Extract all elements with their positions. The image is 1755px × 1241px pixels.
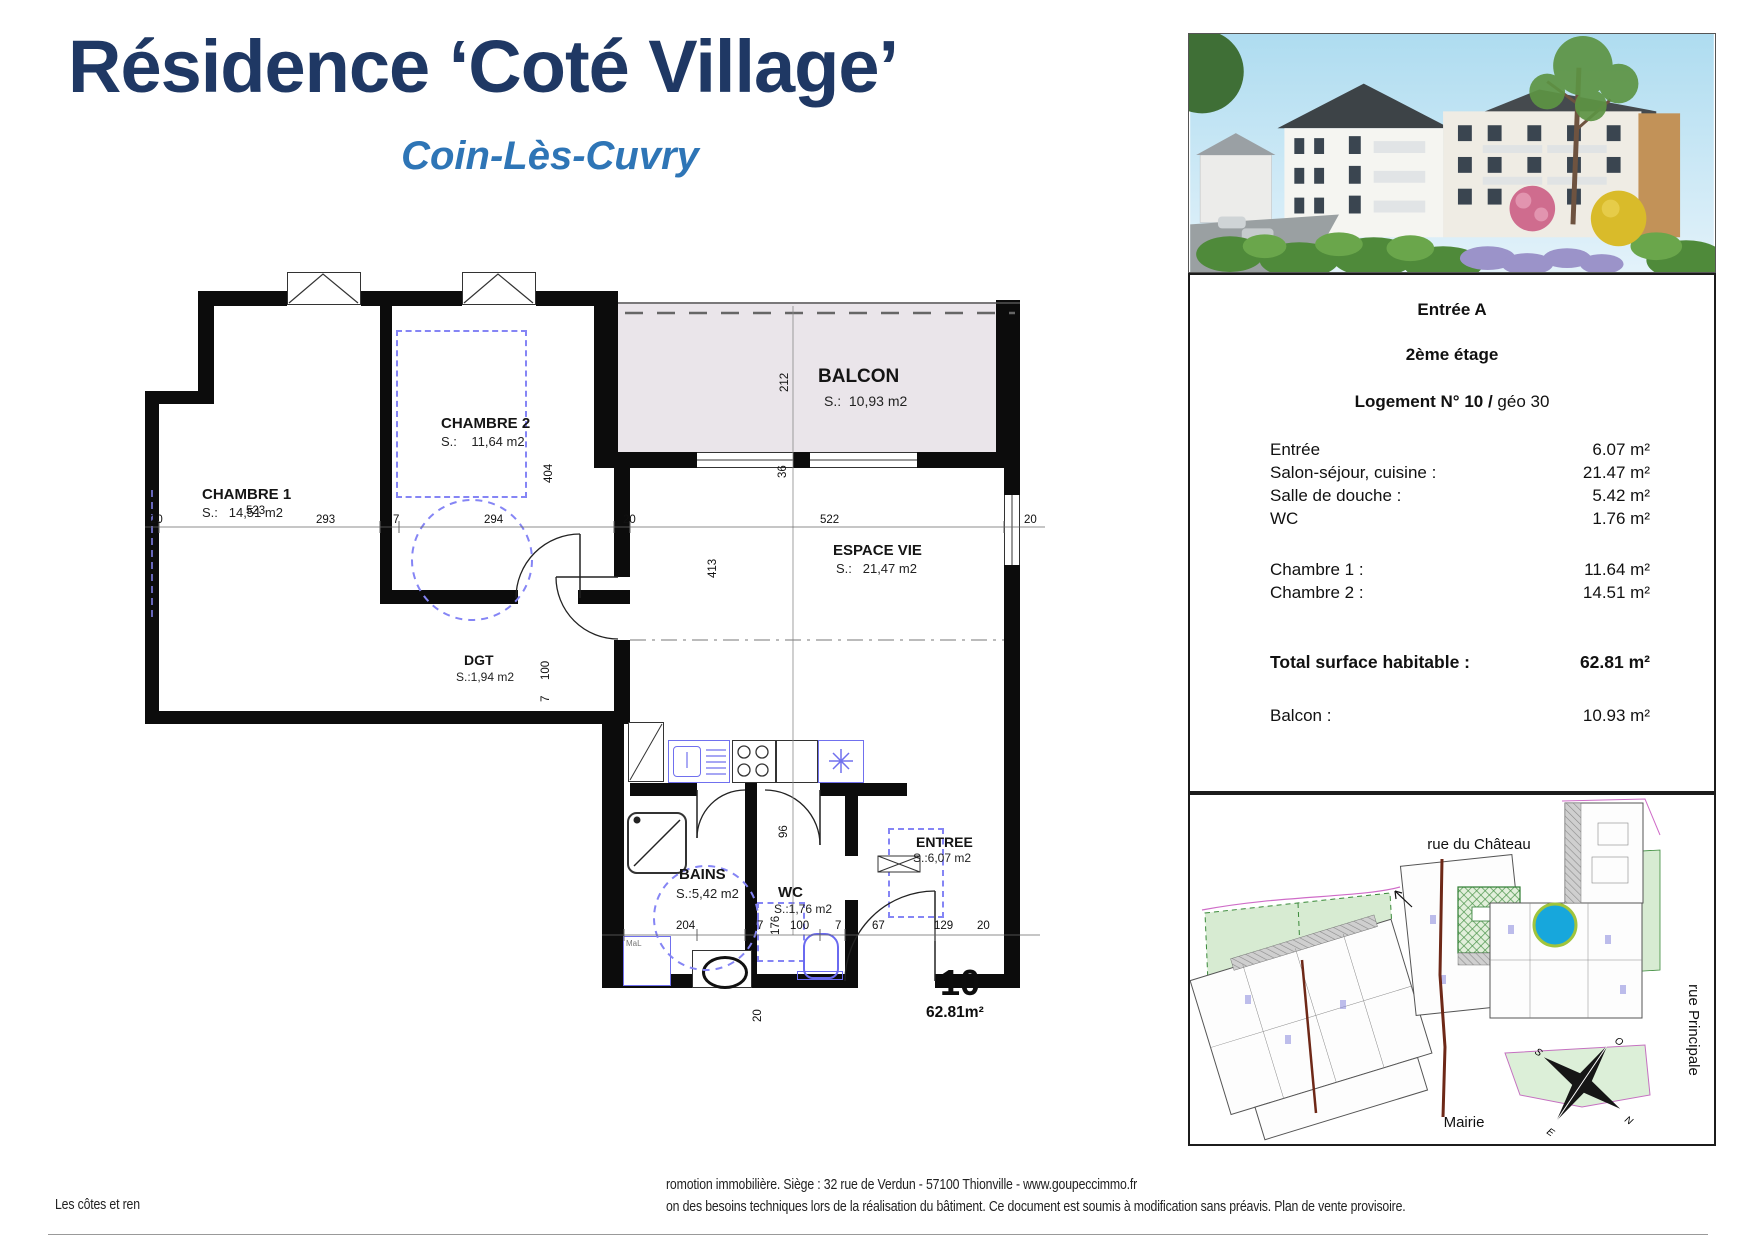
detail-row-label: Salon-séjour, cuisine : <box>1270 463 1436 483</box>
room-area-chambre2: S.: 11,64 m2 <box>441 434 525 449</box>
room-label-chambre1: CHAMBRE 1 <box>202 486 291 503</box>
landmark-label: Mairie <box>1444 1114 1485 1131</box>
detail-row-value: 11.64 m² <box>1500 560 1650 580</box>
room-area-dgt: S.:1,94 m2 <box>456 670 514 684</box>
room-label-entree: ENTREE <box>916 834 973 850</box>
dimension-label: 294 <box>484 514 503 526</box>
dimension-label: 413 <box>707 559 719 578</box>
dimension-label: 212 <box>779 373 791 392</box>
dimension-label: 7 <box>393 514 399 526</box>
dimension-label: 20 <box>977 920 990 932</box>
balcony-row-label: Balcon : <box>1270 706 1331 726</box>
detail-row-label: Chambre 2 : <box>1270 583 1364 603</box>
dimension-label: 100 <box>790 920 809 932</box>
unit-line-rest: géo 30 <box>1493 392 1550 411</box>
dimension-label: 100 <box>540 661 552 680</box>
room-area-balcon: S.: 10,93 m2 <box>824 393 907 409</box>
street-label-right: rue Principale <box>1685 984 1702 1076</box>
dimension-label: 20 <box>1024 514 1037 526</box>
room-area-espace-vie: S.: 21,47 m2 <box>836 561 917 576</box>
room-label-espace-vie: ESPACE VIE <box>833 542 922 559</box>
detail-row-value: 1.76 m² <box>1500 509 1650 529</box>
detail-row-label: Chambre 1 : <box>1270 560 1364 580</box>
detail-row-value: 5.42 m² <box>1500 486 1650 506</box>
room-area-wc: S.:1,76 m2 <box>774 902 832 916</box>
dimension-label: 36 <box>777 465 789 478</box>
dimension-label: 96 <box>778 825 790 838</box>
room-label-dgt: DGT <box>464 652 494 668</box>
unit-line-bold: Logement N° 10 / <box>1355 392 1493 411</box>
room-label-wc: WC <box>778 884 803 901</box>
dimension-label: 293 <box>316 514 335 526</box>
site-plan: O N E S rue du Château rue Principale Ma… <box>1190 795 1714 1144</box>
building-photo <box>1188 33 1716 273</box>
unit-line: Logement N° 10 / géo 30 <box>1188 392 1716 412</box>
room-label-balcon: BALCON <box>818 366 899 388</box>
dimension-label: 7 <box>540 696 552 702</box>
compass-north: N <box>1622 1114 1635 1128</box>
floor-label: 2ème étage <box>1188 345 1716 365</box>
compass-east: E <box>1544 1126 1556 1139</box>
dimension-label: 20 <box>623 514 636 526</box>
dimension-label: 20 <box>150 514 163 526</box>
room-area-entree: S.:6,07 m2 <box>913 851 971 865</box>
room-area-chambre1: S.: 14,51 m2 <box>202 505 283 520</box>
unit-number: 10 <box>940 962 980 1004</box>
dimension-label: 20 <box>752 1009 764 1022</box>
detail-row-value: 14.51 m² <box>1500 583 1650 603</box>
detail-row-label: Entrée <box>1270 440 1320 460</box>
dimension-label: 204 <box>676 920 695 932</box>
dimension-label: 522 <box>820 514 839 526</box>
dimension-label: 67 <box>872 920 885 932</box>
unit-location-marker <box>1534 904 1576 946</box>
dimension-label: 523 <box>246 505 265 517</box>
room-area-bains: S.:5,42 m2 <box>676 886 739 901</box>
room-label-chambre2: CHAMBRE 2 <box>441 415 530 432</box>
detail-row-value: 21.47 m² <box>1500 463 1650 483</box>
detail-row-value: 6.07 m² <box>1500 440 1650 460</box>
detail-row-label: Salle de douche : <box>1270 486 1401 506</box>
detail-row-label: WC <box>1270 509 1298 529</box>
street-label-top: rue du Château <box>1427 836 1530 853</box>
dimension-label: 7 <box>835 920 841 932</box>
room-label-bains: BAINS <box>679 866 726 883</box>
dimension-label: 7 <box>757 920 763 932</box>
dimension-label: 129 <box>934 920 953 932</box>
dimension-label: 404 <box>543 464 555 483</box>
unit-total-area: 62.81m² <box>926 1004 984 1022</box>
balcony-row-value: 10.93 m² <box>1500 706 1650 726</box>
total-area-value: 62.81 m² <box>1500 652 1650 673</box>
footer-line1: romotion immobilière. Siège : 32 rue de … <box>666 1176 1240 1193</box>
dimension-label: 176 <box>770 916 782 935</box>
footer-line2: on des besoins techniques lors de la réa… <box>666 1198 1568 1215</box>
footer-left-text: Les côtes et ren <box>55 1196 159 1213</box>
total-area-label: Total surface habitable : <box>1270 652 1470 673</box>
footer-rule <box>48 1234 1708 1235</box>
entrance-label: Entrée A <box>1188 300 1716 320</box>
